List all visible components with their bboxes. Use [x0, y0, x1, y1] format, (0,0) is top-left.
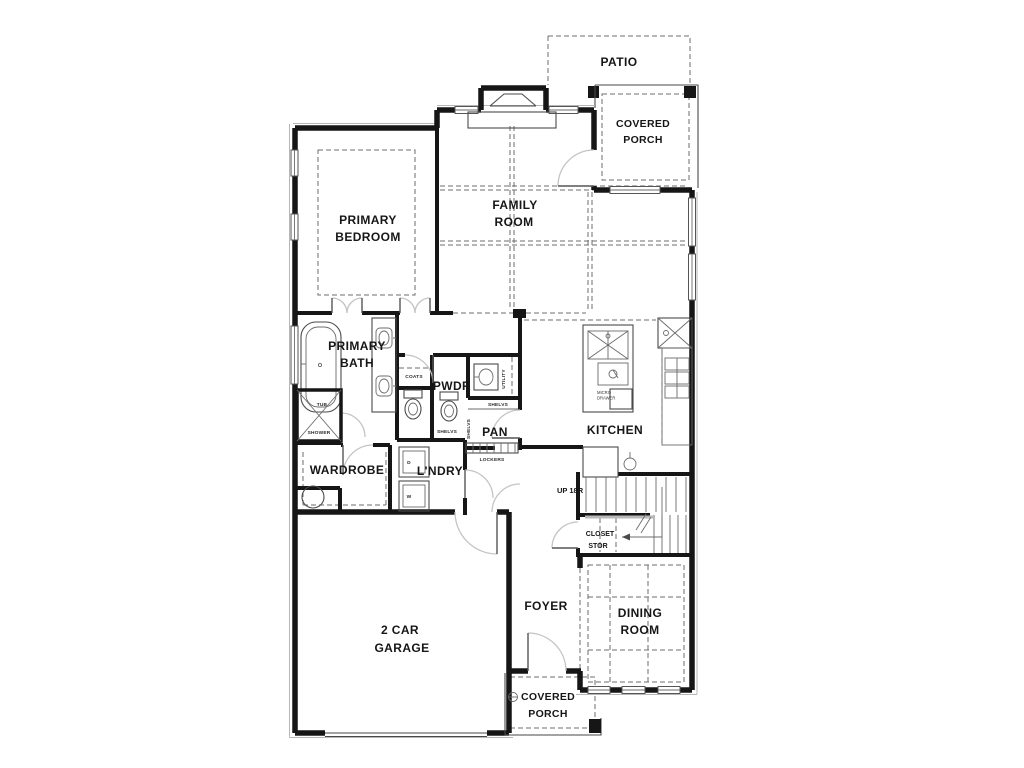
- laundry-door-arc: [465, 470, 493, 498]
- porch-bottom-post: [589, 719, 601, 733]
- wardrobe-rod: [303, 452, 386, 505]
- label-primary-bath-1: PRIMARY: [328, 339, 386, 353]
- opening-post: [513, 309, 526, 318]
- window: [689, 254, 696, 300]
- label-patio: PATIO: [601, 55, 638, 69]
- label-shelvs-pantry-top: SHELVS: [488, 402, 509, 408]
- label-utility: UTILITY: [501, 369, 507, 389]
- label-closet-2: STOR: [588, 543, 607, 550]
- label-closet-1: CLOSET: [586, 531, 615, 538]
- bedroom-double-door-arc: [332, 298, 362, 313]
- label-micro-1: MICRO: [597, 390, 612, 395]
- porch-door-arc: [558, 150, 594, 186]
- stairs-closet-door-arc: [552, 522, 578, 548]
- window: [689, 198, 696, 246]
- toilet-bath: [404, 390, 422, 419]
- label-shelvs-linen: SHELVS: [437, 429, 458, 435]
- label-foyer: FOYER: [524, 599, 567, 613]
- porch-bottom: [505, 673, 601, 735]
- kitchen-right-cabinets: [662, 348, 692, 445]
- powder-sink: [474, 364, 498, 390]
- label-primary-bath-2: BATH: [340, 356, 374, 370]
- label-coats: COATS: [405, 374, 423, 380]
- fireplace-walls: [481, 88, 546, 110]
- label-covered-porch-bottom-1: COVERED: [521, 691, 575, 703]
- window: [658, 687, 680, 694]
- window: [610, 187, 660, 194]
- window: [291, 150, 298, 176]
- label-pantry: PAN: [482, 425, 508, 439]
- garage-door-arc: [455, 512, 497, 554]
- door-swings: [332, 150, 594, 671]
- bathtub: [301, 322, 341, 412]
- label-washer: W: [407, 494, 412, 500]
- label-dryer: D: [407, 460, 411, 466]
- kitchen-corner-sink: [658, 318, 692, 348]
- window: [588, 687, 610, 694]
- toilet-powder: [440, 392, 458, 421]
- label-family-room-2: ROOM: [495, 215, 534, 229]
- label-up-18r: UP 18R: [557, 486, 584, 495]
- label-covered-porch-top-2: PORCH: [623, 134, 662, 146]
- garage-door-opening: [325, 733, 487, 737]
- label-lockers: LOCKERS: [480, 457, 505, 463]
- ceiling-beams: [440, 186, 688, 245]
- mudhall-arc: [492, 484, 520, 512]
- washer: [399, 481, 429, 511]
- window: [291, 214, 298, 240]
- front-door-arc: [528, 633, 566, 671]
- family-kitchen-boundary: [588, 192, 592, 311]
- stair-arrowhead: [622, 534, 630, 541]
- label-kitchen: KITCHEN: [587, 423, 643, 437]
- label-covered-porch-bottom-2: PORCH: [528, 708, 567, 720]
- label-primary-bedroom-2: BEDROOM: [335, 230, 400, 244]
- label-tub: TUB: [317, 402, 328, 408]
- label-wardrobe: WARDROBE: [310, 463, 385, 477]
- label-shower: SHOWER: [308, 430, 331, 436]
- porch-post-right: [684, 86, 696, 98]
- vanity: [372, 318, 396, 412]
- label-dining-1: DINING: [618, 606, 662, 620]
- exterior-walls: [295, 85, 698, 737]
- label-micro-2: DRAWER: [597, 396, 615, 401]
- label-covered-porch-top-1: COVERED: [616, 118, 670, 130]
- label-family-room-1: FAMILY: [492, 198, 537, 212]
- label-powder: PWDR: [433, 379, 471, 393]
- label-garage-1: 2 CAR: [381, 623, 419, 637]
- labels: PATIO COVERED PORCH FAMILY ROOM PRIMARY …: [308, 55, 671, 720]
- label-shelvs-pantry-side: SHELVS: [466, 418, 472, 439]
- window: [622, 687, 645, 694]
- shower-door-arc: [341, 413, 365, 437]
- label-primary-bedroom-1: PRIMARY: [339, 213, 397, 227]
- label-laundry: L'NDRY: [417, 464, 463, 478]
- bedroom-entry-arc: [400, 298, 430, 313]
- floor-plan-canvas: PATIO COVERED PORCH FAMILY ROOM PRIMARY …: [0, 0, 1024, 768]
- label-garage-2: GARAGE: [374, 641, 429, 655]
- porch-post-left: [588, 86, 599, 98]
- window: [291, 326, 298, 384]
- label-dining-2: ROOM: [621, 623, 660, 637]
